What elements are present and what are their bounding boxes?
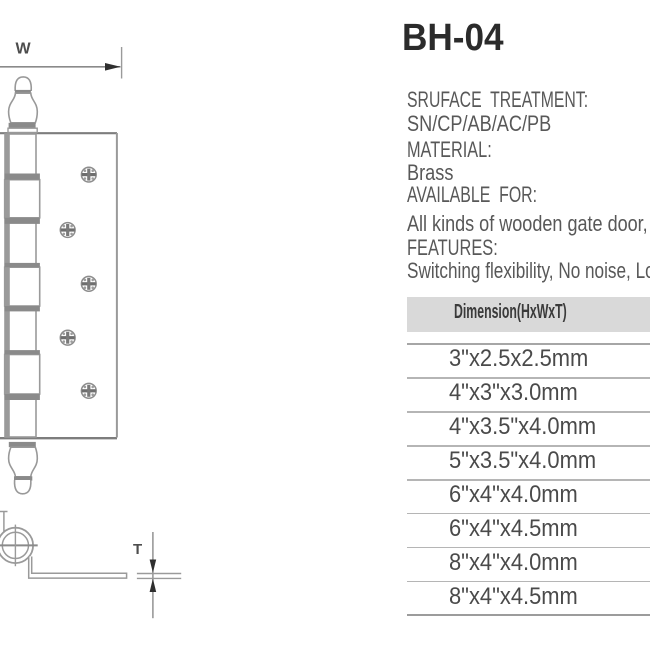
svg-text:T: T xyxy=(133,541,142,558)
svg-text:W: W xyxy=(16,41,32,58)
